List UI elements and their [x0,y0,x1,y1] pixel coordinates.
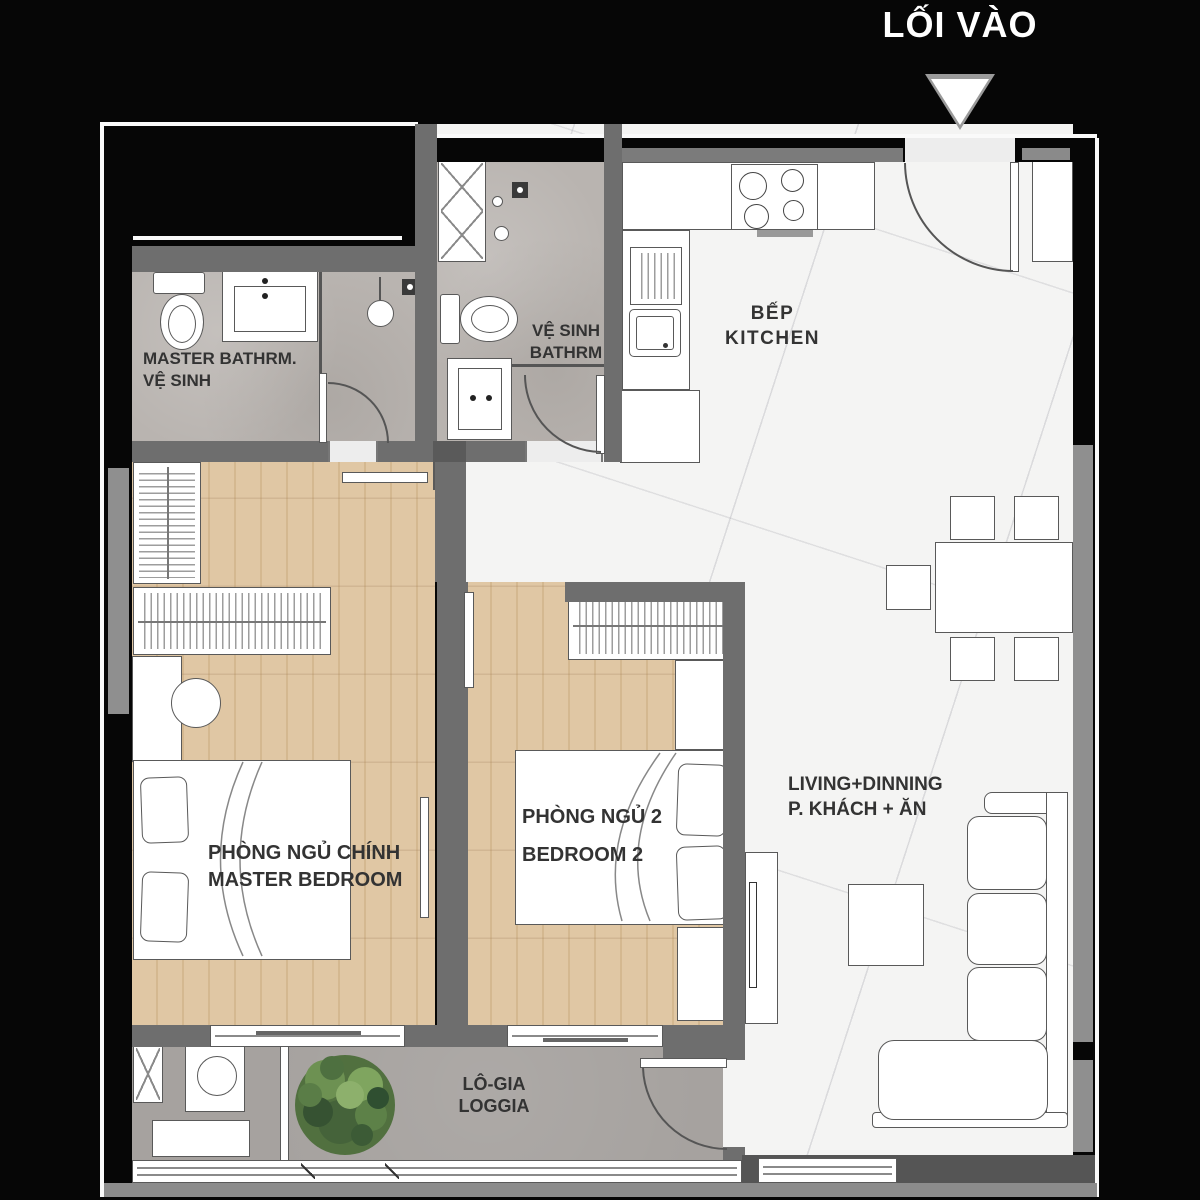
void-edge-line [133,236,402,240]
burner-icon [739,172,767,200]
dining-chair [950,496,995,540]
stove-front-bar [757,230,813,237]
shower-mixer-icon [494,226,509,241]
stool [171,678,221,728]
wardrobe-wide [133,587,331,655]
master-bedroom-label-vi: PHÒNG NGỦ CHÍNH [208,840,402,867]
fridge [620,390,700,463]
drain-hole [407,284,413,290]
toilet2-bowl-inner [471,305,509,333]
bath2-door-leaf [596,375,605,454]
dish-rack-slats [636,253,676,299]
pillow [140,776,189,844]
entry-cabinet [1032,160,1073,262]
wall [405,1025,507,1047]
wall [565,582,723,602]
entrance-arrow-icon-inner [931,79,989,125]
living-window [758,1158,897,1183]
sofa-cushion [967,967,1047,1041]
faucet-dot [262,293,268,299]
wall [132,1025,210,1047]
window-rail [763,1173,892,1175]
dining-chair [886,565,931,610]
bathroom2-label-vi: VỆ SINH [516,320,616,342]
window-leaf [543,1038,628,1042]
floor-plan: LỐI VÀO BẾP KITCHEN MASTER BATHRM. VỆ SI… [0,0,1200,1200]
bedroom-tv-icon [420,797,429,918]
kitchen-sink-basin [636,316,674,350]
handle-dot [470,395,476,401]
railing-line [137,1167,737,1169]
pillow [676,845,729,921]
loggia-partition [280,1042,289,1162]
wall [104,126,418,246]
wall [132,246,418,272]
loggia-railing [132,1160,742,1183]
window-rail [215,1035,400,1037]
window-segment [1073,1060,1093,1152]
bottom-sill [104,1183,1097,1197]
burner-icon [783,200,804,221]
shower-head-icon [367,300,394,327]
master-bath-door-leaf [319,373,327,443]
sofa-cushion [967,893,1047,965]
railing-line [137,1174,737,1176]
wardrobe-divider [573,625,730,627]
toilet2-tank [440,294,460,344]
loggia-door-leaf [640,1058,727,1068]
shaft-x-mark [441,211,483,259]
master-bedroom-label: PHÒNG NGỦ CHÍNH MASTER BEDROOM [208,840,402,894]
bathroom2-label-en: BATHRM [516,342,616,364]
pillow [140,871,189,943]
sliding-window [507,1025,663,1047]
outer-contour-line [1095,138,1099,1197]
bath2-cabinet-door [458,368,502,430]
floor-drain-icon [512,182,528,198]
master-bathroom-label-vi: VỆ SINH [143,370,297,392]
toilet-bowl-inner [168,305,196,343]
loggia-shaft [133,1045,163,1103]
bedroom2-label-vi: PHÒNG NGỦ 2 [522,798,662,836]
window-rail [512,1035,658,1037]
loggia-label-vi: LÔ-GIA [438,1073,550,1095]
shaft-x-mark [136,1048,160,1100]
master-bedroom-label-en: MASTER BEDROOM [208,867,402,894]
entrance-label: LỐI VÀO [860,4,1060,46]
toilet-tank [153,272,205,294]
handle-dot [486,395,492,401]
entry-door-leaf [1010,162,1019,272]
shower-mixer-icon [492,196,503,207]
shaft-x-mark [441,163,483,211]
living-dining-label: LIVING+DINNING P. KHÁCH + ĂN [788,772,943,822]
bedroom2-sliding-door [464,592,474,688]
railing-tick [385,1163,399,1179]
wall [663,1025,745,1060]
kitchen-label-en: KITCHEN [690,326,855,351]
coffee-table [848,884,924,966]
sofa-cushion [967,816,1047,890]
wall [435,462,466,582]
wall [415,124,437,462]
master-bathroom-label: MASTER BATHRM. VỆ SINH [143,348,297,392]
faucet-dot [262,278,268,284]
sink-drain-dot [663,343,668,348]
wardrobe-divider [167,467,169,579]
dining-chair [1014,496,1059,540]
wardrobe-divider [138,621,326,623]
shower-glass-partition [319,270,322,373]
wardrobe-tall [133,462,201,584]
sofa-chaise [878,1040,1048,1120]
washer-drum [197,1056,237,1096]
wall [723,582,745,1042]
ac-condenser [152,1120,250,1157]
wall [132,441,328,462]
wall-accent [1022,148,1070,160]
sofa-back [1046,792,1068,1122]
vanity-sink [234,286,306,332]
window-rail [763,1166,892,1168]
wall [604,124,622,462]
bedroom2-label: PHÒNG NGỦ 2 BEDROOM 2 [522,798,662,874]
kitchen-label: BẾP KITCHEN [690,301,855,351]
wall [378,441,438,462]
door-sill [525,441,603,462]
window-segment [1073,445,1093,1042]
dining-table [935,542,1073,633]
burner-icon [744,204,769,229]
sliding-window [210,1025,405,1047]
dining-chair [1014,637,1059,681]
master-bedroom-sliding-door [342,472,428,483]
dining-chair [950,637,995,681]
wall-accent [622,148,903,162]
loggia-label: LÔ-GIA LOGGIA [438,1073,550,1117]
window-leaf [256,1031,361,1035]
service-shaft [438,160,486,262]
bedroom2-label-en: BEDROOM 2 [522,836,662,874]
wall [1073,138,1095,445]
living-dining-label-vi: P. KHÁCH + ĂN [788,797,943,822]
door-sill [328,441,378,462]
railing-tick [301,1163,315,1179]
pillow [676,763,728,837]
dish-rack [630,247,682,305]
entrance-threshold [905,138,1015,162]
living-dining-label-en: LIVING+DINNING [788,772,943,797]
drain-hole [517,187,523,193]
window-segment [108,468,129,714]
tv-icon [749,882,757,988]
master-bathroom-label-en: MASTER BATHRM. [143,348,297,370]
bathroom2-label: VỆ SINH BATHRM [516,320,616,364]
burner-icon [781,169,804,192]
kitchen-label-vi: BẾP [690,301,855,326]
loggia-label-en: LOGGIA [438,1095,550,1117]
